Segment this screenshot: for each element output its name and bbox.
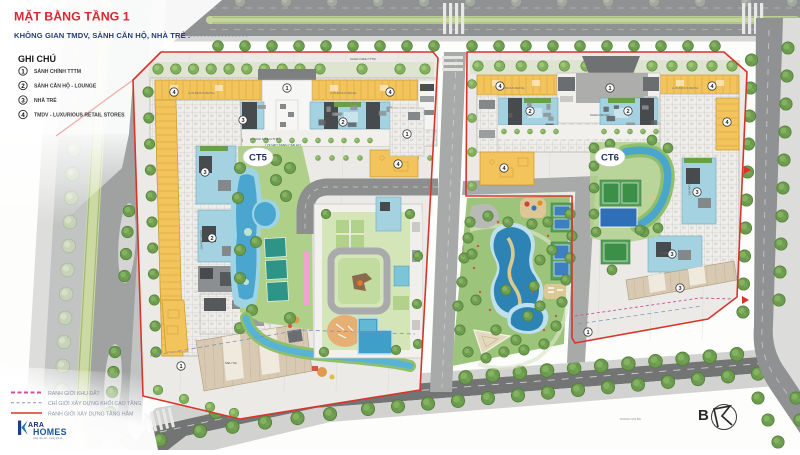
- svg-text:2: 2: [210, 236, 213, 242]
- svg-text:SANH CAN HO: SANH CAN HO: [687, 176, 692, 196]
- svg-text:MẶT BẰNG TẦNG 1: MẶT BẰNG TẦNG 1: [14, 9, 130, 24]
- svg-text:KHÔNG GIAN TMDV, SẢNH CĂN HỘ,: KHÔNG GIAN TMDV, SẢNH CĂN HỘ, NHÀ TRẺ .: [14, 31, 190, 40]
- svg-text:2: 2: [341, 120, 344, 126]
- svg-text:4: 4: [21, 112, 25, 119]
- svg-text:NHÀ TRẺ: NHÀ TRẺ: [34, 97, 57, 104]
- svg-text:1: 1: [608, 86, 611, 92]
- svg-text:TMDV - LUXURIOUS RETAIL STORES: TMDV - LUXURIOUS RETAIL STORES: [34, 113, 125, 119]
- svg-text:3: 3: [670, 252, 673, 258]
- svg-text:SANH CAN HO: SANH CAN HO: [590, 113, 610, 117]
- svg-text:SANH CHINH TTTM: SANH CHINH TTTM: [350, 57, 376, 61]
- svg-text:1: 1: [586, 330, 589, 336]
- svg-text:DUONG NOI BO: DUONG NOI BO: [620, 417, 642, 421]
- svg-text:LUXURIOUS RETAIL: LUXURIOUS RETAIL: [330, 91, 357, 95]
- svg-text:1: 1: [179, 364, 182, 370]
- svg-text:1: 1: [405, 132, 408, 138]
- svg-text:3: 3: [241, 118, 244, 124]
- svg-text:RANH GIỚI XÂY DỰNG TẦNG HẦM: RANH GIỚI XÂY DỰNG TẦNG HẦM: [48, 410, 133, 417]
- svg-text:Đập nên tìn - Tạng giá trị: Đập nên tìn - Tạng giá trị: [34, 436, 63, 440]
- svg-text:2: 2: [21, 83, 25, 90]
- svg-text:RANH GIỚI KHU ĐẤT: RANH GIỚI KHU ĐẤT: [48, 390, 101, 397]
- svg-text:3: 3: [678, 286, 681, 292]
- svg-text:SANH: SANH: [660, 251, 668, 255]
- svg-text:3: 3: [203, 170, 206, 176]
- svg-text:GHI CHÚ: GHI CHÚ: [18, 53, 56, 64]
- svg-text:HOMES: HOMES: [33, 427, 67, 437]
- svg-text:LOI VAO: LOI VAO: [461, 246, 465, 258]
- svg-text:CT5: CT5: [249, 153, 268, 164]
- svg-text:SANH CAN HO: SANH CAN HO: [199, 230, 204, 250]
- svg-text:3: 3: [21, 97, 25, 104]
- svg-text:1: 1: [285, 86, 288, 92]
- svg-text:LUXURIOUS RETAIL: LUXURIOUS RETAIL: [188, 91, 215, 95]
- svg-text:SIEU THI: SIEU THI: [225, 361, 237, 365]
- svg-text:2: 2: [528, 109, 531, 115]
- svg-text:SẢNH CHÍNH TTTM: SẢNH CHÍNH TTTM: [34, 67, 81, 75]
- svg-text:1: 1: [21, 68, 25, 75]
- svg-text:SẢNH CĂN HỘ - LOUNGE: SẢNH CĂN HỘ - LOUNGE: [34, 82, 97, 90]
- svg-text:B: B: [698, 407, 709, 424]
- svg-text:LUXURIOUS RETAIL: LUXURIOUS RETAIL: [672, 86, 699, 90]
- svg-text:2: 2: [626, 109, 629, 115]
- svg-text:CHỈ GIỚI XÂY DỰNG KHỐI CAO TẦN: CHỈ GIỚI XÂY DỰNG KHỐI CAO TẦNG: [48, 400, 141, 407]
- svg-text:CT6: CT6: [601, 153, 619, 164]
- svg-text:3: 3: [695, 190, 698, 196]
- svg-text:LOI VAO SANH CTTM: LOI VAO SANH CTTM: [250, 137, 279, 141]
